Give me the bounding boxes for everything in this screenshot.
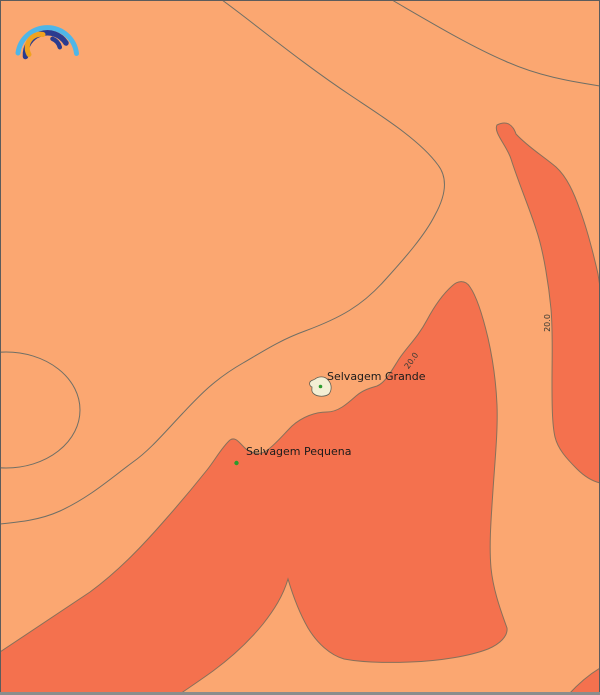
contour-value-label-2: 20.0 [544, 314, 552, 332]
selvagem-grande-marker [319, 385, 323, 389]
place-label-selvagem-grande: Selvagem Grande [327, 371, 426, 383]
place-label-selvagem-pequena: Selvagem Pequena [246, 446, 351, 458]
map-canvas [0, 0, 600, 695]
selvagem-pequena-marker [234, 461, 238, 465]
weather-map[interactable]: Selvagem Grande Selvagem Pequena 20.0 20… [0, 0, 600, 695]
